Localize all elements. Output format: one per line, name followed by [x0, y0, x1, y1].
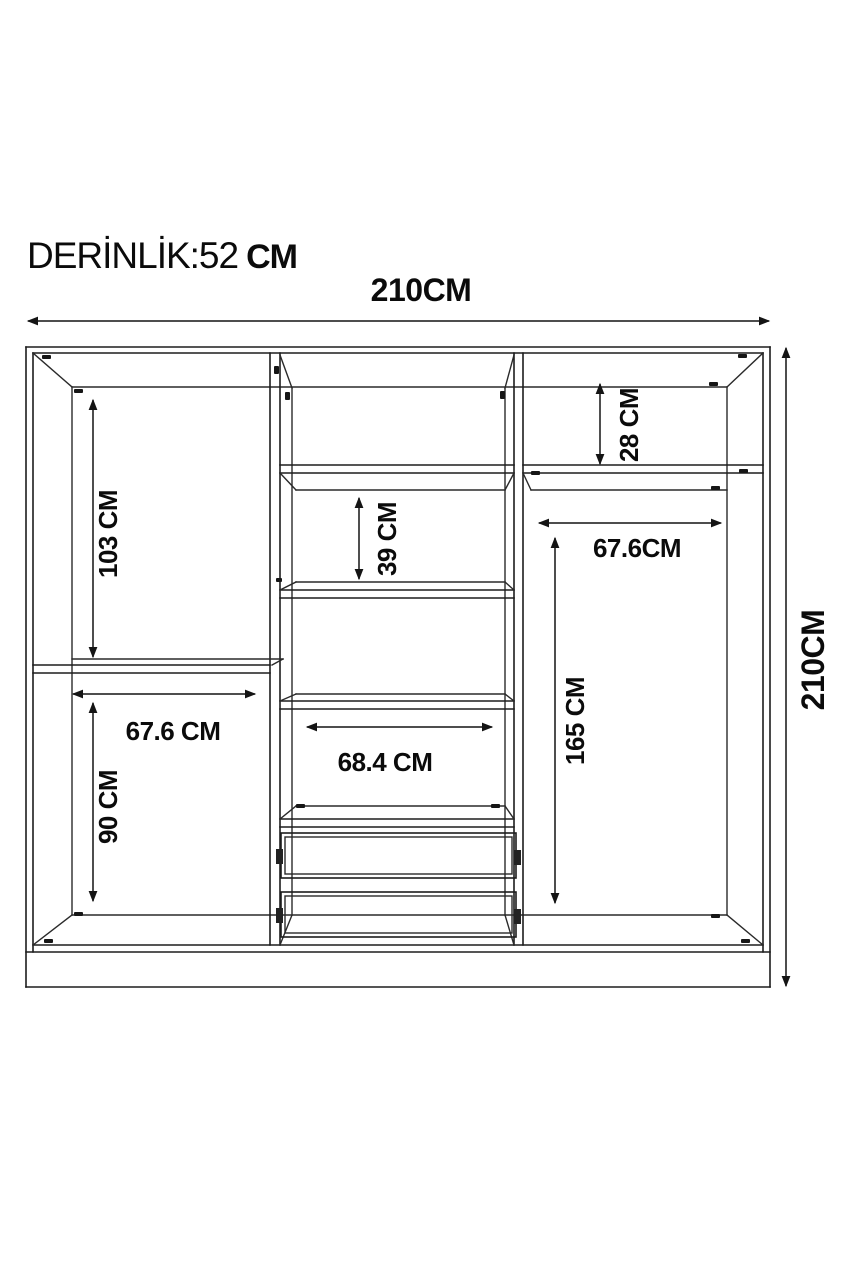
wardrobe-frame	[26, 347, 770, 987]
drawer-box-top-shelf	[280, 806, 514, 827]
shelf-middle-2	[280, 582, 514, 598]
right-height-label: 165 CM	[560, 677, 590, 765]
drawer-1	[276, 833, 521, 878]
depth-label-text: DERİNLİK:52	[27, 235, 238, 276]
left-top-height-label: 103 CM	[93, 490, 123, 578]
right-top-height-label: 28 CM	[614, 388, 644, 462]
drawer-1-left-handle	[276, 849, 283, 864]
dimension-lines	[28, 321, 786, 986]
wardrobe-dimension-diagram: DERİNLİK:52CM 210CM 210CM 103 CM 67.6 CM…	[0, 0, 853, 1280]
left-bottom-height-label: 90 CM	[93, 770, 123, 844]
drawer-1-right-handle	[514, 850, 521, 865]
center-width-label: 68.4 CM	[338, 747, 433, 777]
shelf-left-column	[33, 659, 283, 673]
shelf-middle-3	[280, 694, 514, 709]
back-panel	[33, 353, 763, 945]
center-shelf-gap-label: 39 CM	[372, 502, 402, 576]
shelf-top	[280, 465, 763, 490]
overall-width-label: 210CM	[371, 272, 472, 308]
overall-height-label: 210CM	[795, 610, 831, 711]
left-bottom-width-label: 67.6 CM	[126, 716, 221, 746]
depth-label-unit: CM	[246, 238, 297, 276]
technical-drawing-page: DERİNLİK:52CM 210CM 210CM 103 CM 67.6 CM…	[0, 0, 853, 1280]
drawer-2-right-handle	[514, 909, 521, 924]
right-width-label: 67.6CM	[593, 533, 681, 563]
depth-label: DERİNLİK:52CM	[27, 235, 297, 276]
drawer-2-left-handle	[276, 908, 283, 923]
